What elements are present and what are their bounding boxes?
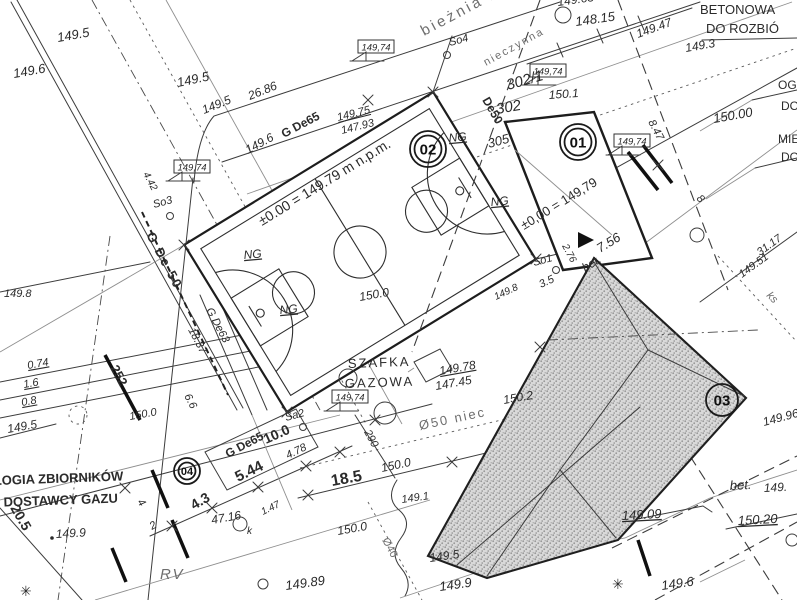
tree-symbol: ✳: [612, 576, 624, 592]
object-marker-02: 02: [410, 131, 446, 167]
ground-label: NG: [279, 301, 298, 317]
object-number: 01: [570, 134, 587, 151]
note-clipped: DO: [781, 150, 797, 164]
ground-label: NG: [243, 246, 262, 262]
note-demolition: DO ROZBIÓ: [706, 21, 779, 36]
elevation-label: 149.8: [4, 288, 32, 300]
object-marker-04: 04: [174, 458, 200, 484]
object-number: 02: [420, 141, 437, 158]
note-clipped: MIE: [778, 132, 797, 146]
site-plan-page: 149,74149,74149,74149,74149,74 02010304 …: [0, 0, 797, 600]
elevation-label: 150.1: [548, 86, 579, 102]
object-number: 04: [181, 466, 194, 478]
object-number: 03: [714, 392, 731, 409]
gas-cabinet-label: SZAFKA: [348, 354, 411, 371]
note-demolition: BETONOWA: [700, 2, 775, 17]
ground-label: NG: [448, 129, 467, 145]
tree-symbol: ✳: [20, 583, 32, 599]
area-label: RV: [160, 566, 185, 583]
survey-drawing: 149,74149,74149,74149,74149,74 02010304 …: [0, 0, 797, 600]
elevation-label: 150.20: [737, 511, 778, 528]
elevation-label: 149.9: [55, 525, 86, 541]
ground-label: NG: [490, 193, 509, 209]
elevation-label: 149.09: [621, 506, 661, 523]
gas-cabinet-label: GAZOWA: [345, 374, 415, 391]
note-clipped: OGR: [778, 78, 797, 92]
surface-label: bet.: [729, 477, 751, 493]
note-clipped: DO: [781, 99, 797, 113]
elevation-label: 149.: [763, 480, 787, 495]
